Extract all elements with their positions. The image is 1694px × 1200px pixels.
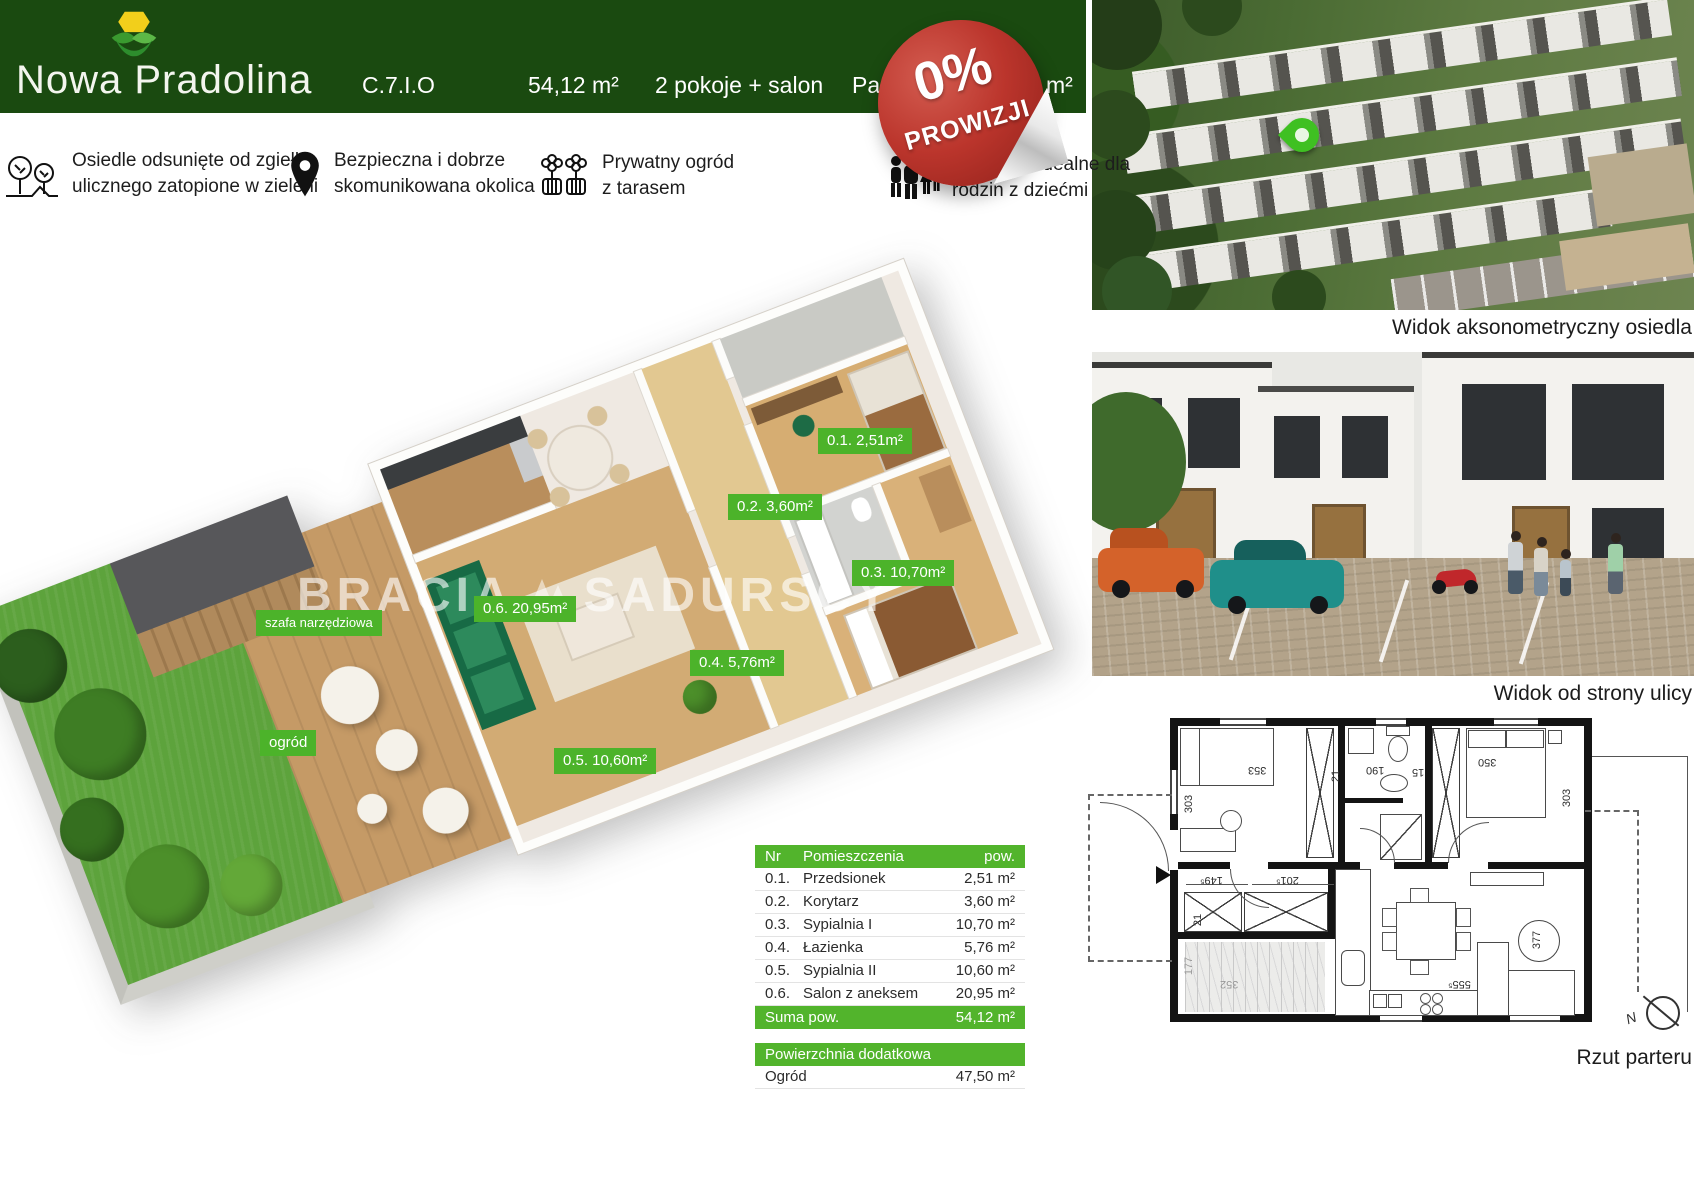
chair-symbol [1456, 908, 1471, 927]
door-opening [1230, 862, 1268, 869]
dim-21: 21 [1330, 770, 1342, 782]
pedestrian-head [1611, 533, 1621, 543]
wall [1178, 932, 1328, 939]
dining-table-symbol [1396, 902, 1456, 960]
dim-190: 190 [1366, 764, 1384, 776]
dim-149: 149⁵ [1200, 874, 1223, 886]
parking-line [1379, 579, 1409, 662]
wardrobe-symbol [1306, 728, 1334, 858]
wall [1584, 718, 1592, 1022]
table-sum-row: Suma pow. 54,12 m² [755, 1006, 1025, 1029]
car-wheel [1112, 580, 1130, 598]
dim-circle: 377 [1518, 920, 1560, 962]
wardrobe [919, 465, 972, 533]
pillow-symbol [1468, 730, 1506, 748]
pouf-seat [416, 781, 475, 840]
pedestrian-head [1511, 531, 1521, 541]
unit-code: C.7.I.O [362, 72, 435, 99]
pedestrian-head [1561, 549, 1571, 559]
table-row: 0.2. Korytarz 3,60 m² [755, 891, 1025, 914]
tree-blob [1092, 0, 1162, 70]
window-symbol [1220, 718, 1266, 726]
bush [113, 832, 222, 941]
window [1274, 416, 1320, 478]
compass-north: N [1624, 1009, 1639, 1027]
feature-garden: Prywatny ogród z tarasem [538, 150, 734, 202]
table-row: 0.6. Salon z aneksem 20,95 m² [755, 983, 1025, 1006]
kitchen-counter-symbol [1335, 869, 1371, 1016]
street-render [1092, 352, 1694, 676]
plan-caption: Rzut parteru [1092, 1046, 1692, 1070]
chair-symbol [1382, 932, 1397, 951]
feature-greenery: Osiedle odsunięte od zgiełku ulicznego z… [4, 148, 318, 202]
plant [678, 675, 722, 719]
location-pin-icon [288, 148, 322, 200]
extra-table-header: Powierzchnia dodatkowa [755, 1043, 1025, 1066]
car-wheel [1228, 596, 1246, 614]
toilet [849, 495, 874, 524]
bike-wheel [1432, 580, 1446, 594]
tree-blob [1272, 270, 1326, 310]
dim-555: 555⁵ [1448, 978, 1471, 990]
table-row: 0.5. Sypialnia II 10,60 m² [755, 960, 1025, 983]
door-opening [1360, 862, 1394, 869]
pillow-symbol [1506, 730, 1544, 748]
col-area: pow. [931, 845, 1015, 868]
desk-chair [789, 412, 817, 440]
pouf-seat [353, 789, 392, 828]
trees-icon [4, 148, 60, 202]
garden-label: ogród [260, 730, 316, 756]
feature-text: Bezpieczna i dobrze skomunikowana okolic… [334, 148, 535, 200]
warehouse-roof [1588, 143, 1694, 226]
porch-boundary [1088, 794, 1172, 962]
technical-plan: N 353 303 21 190 15 350 303 149⁵ 201⁵ 21… [1080, 710, 1694, 1058]
window-symbol [1376, 718, 1406, 726]
area-fragment: m² [1046, 72, 1073, 99]
chair-symbol [1410, 960, 1429, 975]
pedestrian [1534, 548, 1548, 596]
col-nr: Nr [765, 845, 803, 868]
brand-name: Nowa Pradolina [16, 58, 312, 103]
chair-symbol [1220, 810, 1242, 832]
aerial-caption: Widok aksonometryczny osiedla [1092, 316, 1692, 340]
room-label-0-2: 0.2. 3,60m² [728, 494, 822, 520]
table-header: Nr Pomieszczenia pow. [755, 845, 1025, 868]
car-wheel [1310, 596, 1328, 614]
dim-177: 177 [1183, 957, 1195, 975]
feature-text: Prywatny ogród z tarasem [602, 150, 734, 202]
plot-line [1592, 756, 1688, 757]
dim-352: 352 [1220, 978, 1238, 990]
wall [1338, 726, 1345, 862]
nightstand-symbol [1548, 730, 1562, 744]
chair-symbol [1382, 908, 1397, 927]
unit-area: 54,12 m² [528, 72, 619, 99]
table-row: 0.4. Łazienka 5,76 m² [755, 937, 1025, 960]
window-symbol [1494, 718, 1538, 726]
kitchen-counter [380, 416, 528, 490]
chair-symbol [1410, 888, 1429, 903]
bush [211, 845, 291, 925]
dim-15: 15 [1412, 766, 1424, 778]
burner [1420, 1004, 1431, 1015]
room-label-0-1: 0.1. 2,51m² [818, 428, 912, 454]
room-label-0-5: 0.5. 10,60m² [554, 748, 656, 774]
pedestrian [1608, 544, 1623, 594]
washer-symbol [1348, 728, 1374, 754]
window [1572, 384, 1664, 480]
room-label-0-4: 0.4. 5,76m² [690, 650, 784, 676]
table-row: 0.3. Sypialnia I 10,70 m² [755, 914, 1025, 937]
garden-boundary-dashed [1585, 810, 1639, 814]
pedestrian-head [1537, 537, 1547, 547]
dim-350: 350 [1478, 756, 1496, 768]
tree-blob [1182, 0, 1242, 36]
unit-layout: 2 pokoje + salon [655, 72, 823, 99]
bush [51, 788, 134, 871]
table-row: 0.1. Przedsionek 2,51 m² [755, 868, 1025, 891]
pillow-symbol [1180, 728, 1200, 786]
dim-21b: 21 [1192, 914, 1204, 926]
window [1188, 398, 1240, 468]
brand-logo-icon [106, 8, 162, 60]
sofa-chaise-symbol [1477, 942, 1509, 1016]
garden-icon [538, 150, 590, 200]
wall [1345, 798, 1403, 803]
wall [1328, 869, 1335, 939]
plot-line [1687, 756, 1688, 1012]
stairs-symbol [1185, 942, 1325, 1012]
bike-wheel [1464, 580, 1478, 594]
sink-symbol [1341, 950, 1365, 986]
chair-symbol [1456, 932, 1471, 951]
dim-353: 353 [1248, 764, 1266, 776]
extra-table-row: Ogród 47,50 m² [755, 1066, 1025, 1089]
feature-location: Bezpieczna i dobrze skomunikowana okolic… [288, 148, 535, 200]
bush [41, 675, 160, 794]
pedestrian [1508, 542, 1523, 594]
tv-bench-symbol [1470, 872, 1544, 886]
door-opening [1448, 862, 1488, 869]
pedestrian-child [1560, 560, 1571, 596]
dim-303-left: 303 [1183, 795, 1195, 813]
toilet-symbol [1388, 736, 1408, 762]
burner [1420, 993, 1431, 1004]
wall [1425, 726, 1432, 862]
bush [0, 618, 78, 714]
burner [1432, 993, 1443, 1004]
rooms-table: Nr Pomieszczenia pow. 0.1. Przedsionek 2… [755, 845, 1025, 1089]
aerial-render [1092, 0, 1694, 310]
room-label-0-6: 0.6. 20,95m² [474, 596, 576, 622]
street-caption: Widok od strony ulicy [1092, 682, 1692, 706]
sink-symbol [1380, 774, 1408, 792]
pouf-seat [312, 658, 387, 733]
flyer-page: Nowa Pradolina C.7.I.O 54,12 m² 2 pokoje… [0, 0, 1694, 1200]
pouf-seat [370, 723, 424, 777]
dim-201: 201⁵ [1276, 874, 1299, 886]
window [1462, 384, 1546, 480]
dim-377: 377 [1531, 931, 1543, 949]
cabinet-symbol [1388, 994, 1402, 1008]
sofa-cushion [470, 662, 524, 714]
garden-boundary-dashed [1637, 810, 1641, 992]
burner [1432, 1004, 1443, 1015]
cabinet-symbol [1373, 994, 1387, 1008]
sofa-cushion [453, 617, 507, 669]
car-wheel [1176, 580, 1194, 598]
feature-text: Osiedle odsunięte od zgiełku ulicznego z… [72, 148, 318, 200]
warehouse-roof [1559, 223, 1694, 291]
dim-303-right: 303 [1561, 789, 1573, 807]
room-label-0-3: 0.3. 10,70m² [852, 560, 954, 586]
col-name: Pomieszczenia [803, 845, 931, 868]
shed-label: szafa narzędziowa [256, 610, 382, 636]
toilet-tank-symbol [1386, 726, 1410, 736]
window [1342, 416, 1388, 478]
